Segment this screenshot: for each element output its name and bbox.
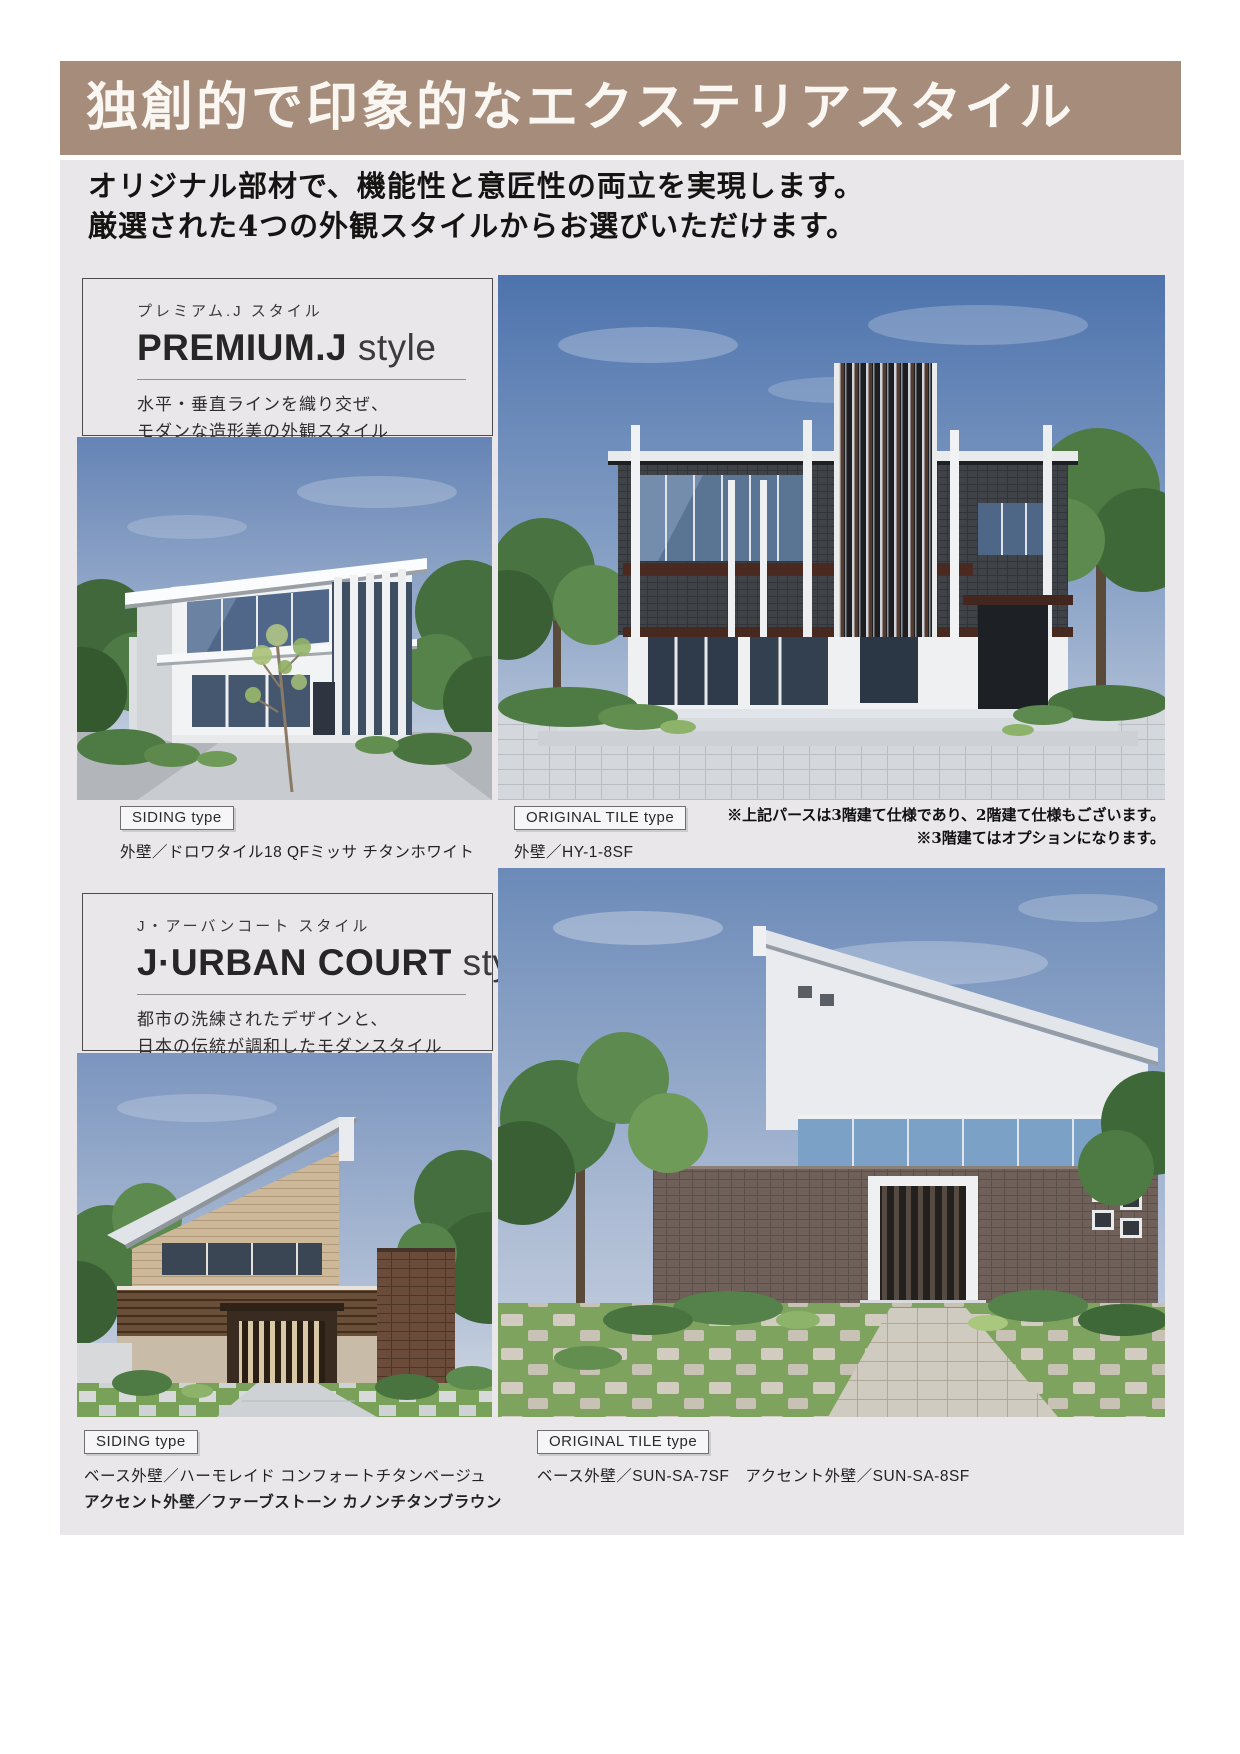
siding-type-badge: SIDING type xyxy=(120,806,234,830)
premium-j-siding-rendering xyxy=(77,437,492,800)
j-urban-court-style-title: J·URBAN COURT style xyxy=(137,942,466,984)
original-tile-type-badge: ORIGINAL TILE type xyxy=(514,806,686,830)
premium-j-siding-caption: 外壁／ドロワタイル18 QFミッサ チタンホワイト xyxy=(120,840,474,862)
premium-j-style-title: PREMIUM.J style xyxy=(137,327,466,369)
premium-j-title-suffix: style xyxy=(358,327,437,368)
j-urban-siding-caption-2: アクセント外壁／ファーブストーン カノンチタンブラウン xyxy=(84,1490,502,1512)
siding-type-badge-2: SIDING type xyxy=(84,1430,198,1454)
j-urban-court-stylebox: J・アーバンコート スタイル J·URBAN COURT style 都市の洗練… xyxy=(82,893,493,1051)
premium-j-rule xyxy=(137,379,466,380)
j-urban-siding-badge: SIDING type xyxy=(84,1430,198,1454)
j-urban-court-rule xyxy=(137,994,466,995)
premium-j-kana-label: プレミアム.J スタイル xyxy=(137,300,466,321)
intro-line-2: 厳選された4つの外観スタイルからお選びいただけます。 xyxy=(88,206,864,246)
premium-j-tile-badge: ORIGINAL TILE type xyxy=(514,806,686,830)
premium-j-siding-badge: SIDING type xyxy=(120,806,234,830)
j-urban-court-desc-line1: 都市の洗練されたデザインと、 xyxy=(137,1006,466,1033)
j-urban-court-kana-label: J・アーバンコート スタイル xyxy=(137,915,466,936)
brochure-page: 独創的で印象的なエクステリアスタイル オリジナル部材で、機能性と意匠性の両立を実… xyxy=(0,0,1240,1754)
j-urban-siding-caption-1: ベース外壁／ハーモレイド コンフォートチタンベージュ xyxy=(84,1464,486,1486)
j-urban-court-tile-rendering xyxy=(498,868,1165,1417)
note-line-2: ※3階建てはオプションになります。 xyxy=(727,827,1165,850)
j-urban-court-siding-rendering xyxy=(77,1053,492,1417)
j-urban-tile-caption: ベース外壁／SUN-SA-7SF アクセント外壁／SUN-SA-8SF xyxy=(537,1464,970,1486)
j-urban-court-description: 都市の洗練されたデザインと、 日本の伝統が調和したモダンスタイル xyxy=(137,1006,466,1060)
header-banner: 独創的で印象的なエクステリアスタイル xyxy=(60,61,1181,155)
original-tile-type-badge-2: ORIGINAL TILE type xyxy=(537,1430,709,1454)
premium-j-title-main: PREMIUM.J xyxy=(137,327,347,368)
perspective-notes: ※上記パースは3階建て仕様であり、2階建て仕様もございます。 ※3階建てはオプシ… xyxy=(727,804,1165,850)
intro-text: オリジナル部材で、機能性と意匠性の両立を実現します。 厳選された4つの外観スタイ… xyxy=(88,166,864,246)
premium-j-desc-line1: 水平・垂直ラインを織り交ぜ、 xyxy=(137,391,466,418)
page-title: 独創的で印象的なエクステリアスタイル xyxy=(60,61,1181,155)
premium-j-tile-caption: 外壁／HY-1-8SF xyxy=(514,840,633,862)
j-urban-court-title-main: J·URBAN COURT xyxy=(137,942,452,983)
premium-j-tile-rendering xyxy=(498,275,1165,800)
note-line-1: ※上記パースは3階建て仕様であり、2階建て仕様もございます。 xyxy=(727,804,1165,827)
premium-j-stylebox: プレミアム.J スタイル PREMIUM.J style 水平・垂直ラインを織り… xyxy=(82,278,493,436)
j-urban-tile-badge: ORIGINAL TILE type xyxy=(537,1430,709,1454)
intro-line-1: オリジナル部材で、機能性と意匠性の両立を実現します。 xyxy=(88,166,864,206)
